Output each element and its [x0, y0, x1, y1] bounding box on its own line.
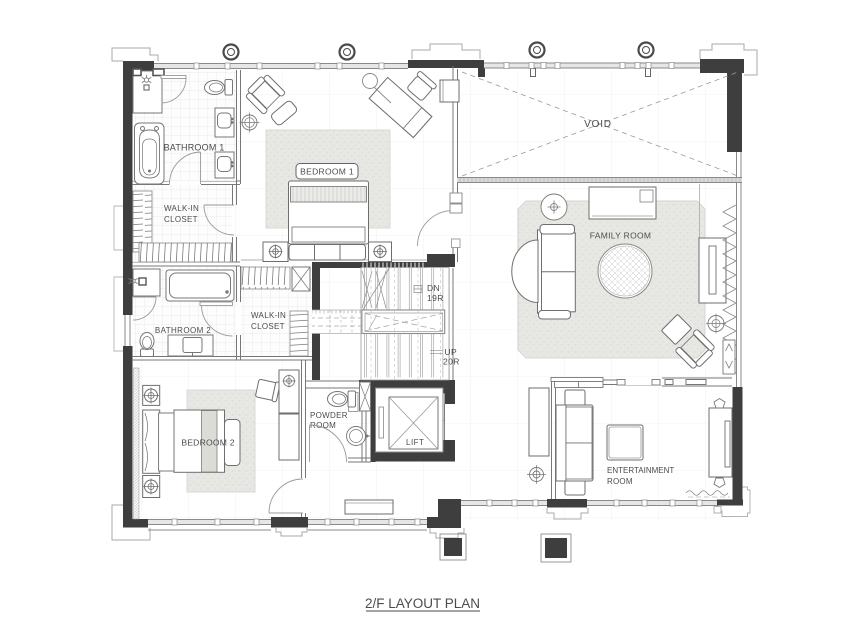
- svg-text:ENTERTAINMENT: ENTERTAINMENT: [607, 466, 674, 475]
- svg-text:FAMILY ROOM: FAMILY ROOM: [590, 231, 652, 241]
- svg-text:CLOSET: CLOSET: [164, 215, 198, 224]
- svg-text:BEDROOM 2: BEDROOM 2: [181, 438, 234, 448]
- svg-text:CLOSET: CLOSET: [251, 322, 285, 331]
- svg-text:20R: 20R: [443, 357, 460, 367]
- svg-text:2/F LAYOUT PLAN: 2/F LAYOUT PLAN: [365, 596, 480, 611]
- svg-text:BATHROOM 1: BATHROOM 1: [164, 143, 225, 153]
- svg-text:ROOM: ROOM: [607, 477, 633, 486]
- svg-text:WALK-IN: WALK-IN: [251, 311, 286, 320]
- svg-text:UP: UP: [445, 347, 458, 357]
- svg-text:19R: 19R: [427, 293, 444, 303]
- svg-text:BATHROOM 2: BATHROOM 2: [155, 326, 211, 335]
- svg-text:DN: DN: [427, 283, 440, 293]
- svg-text:POWDER: POWDER: [310, 411, 348, 420]
- svg-text:LIFT: LIFT: [406, 438, 424, 447]
- svg-text:WALK-IN: WALK-IN: [164, 204, 199, 213]
- svg-text:BEDROOM 1: BEDROOM 1: [300, 167, 354, 177]
- svg-text:VOID: VOID: [584, 119, 612, 130]
